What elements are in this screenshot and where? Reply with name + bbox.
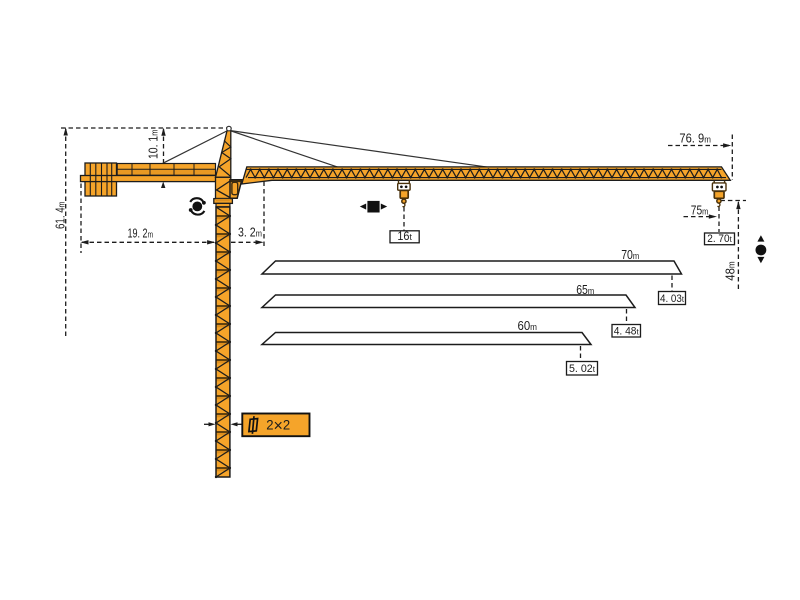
svg-text:61. 4m: 61. 4m xyxy=(54,202,68,230)
svg-text:10. 1m: 10. 1m xyxy=(146,130,160,160)
svg-text:3. 2m: 3. 2m xyxy=(238,225,262,239)
svg-text:75m: 75m xyxy=(691,203,709,217)
svg-text:48m: 48m xyxy=(724,261,738,280)
svg-text:4. 03t: 4. 03t xyxy=(660,293,685,305)
svg-text:19. 2m: 19. 2m xyxy=(128,226,154,240)
svg-text:4. 48t: 4. 48t xyxy=(614,326,640,338)
svg-text:65m: 65m xyxy=(576,283,594,297)
svg-text:2. 70t: 2. 70t xyxy=(707,233,732,245)
svg-text:2×2: 2×2 xyxy=(266,417,290,435)
svg-text:16t: 16t xyxy=(397,231,412,243)
svg-text:76. 9m: 76. 9m xyxy=(679,131,711,145)
svg-text:70m: 70m xyxy=(621,248,639,262)
svg-text:5. 02t: 5. 02t xyxy=(569,363,596,375)
svg-text:60m: 60m xyxy=(518,319,538,333)
